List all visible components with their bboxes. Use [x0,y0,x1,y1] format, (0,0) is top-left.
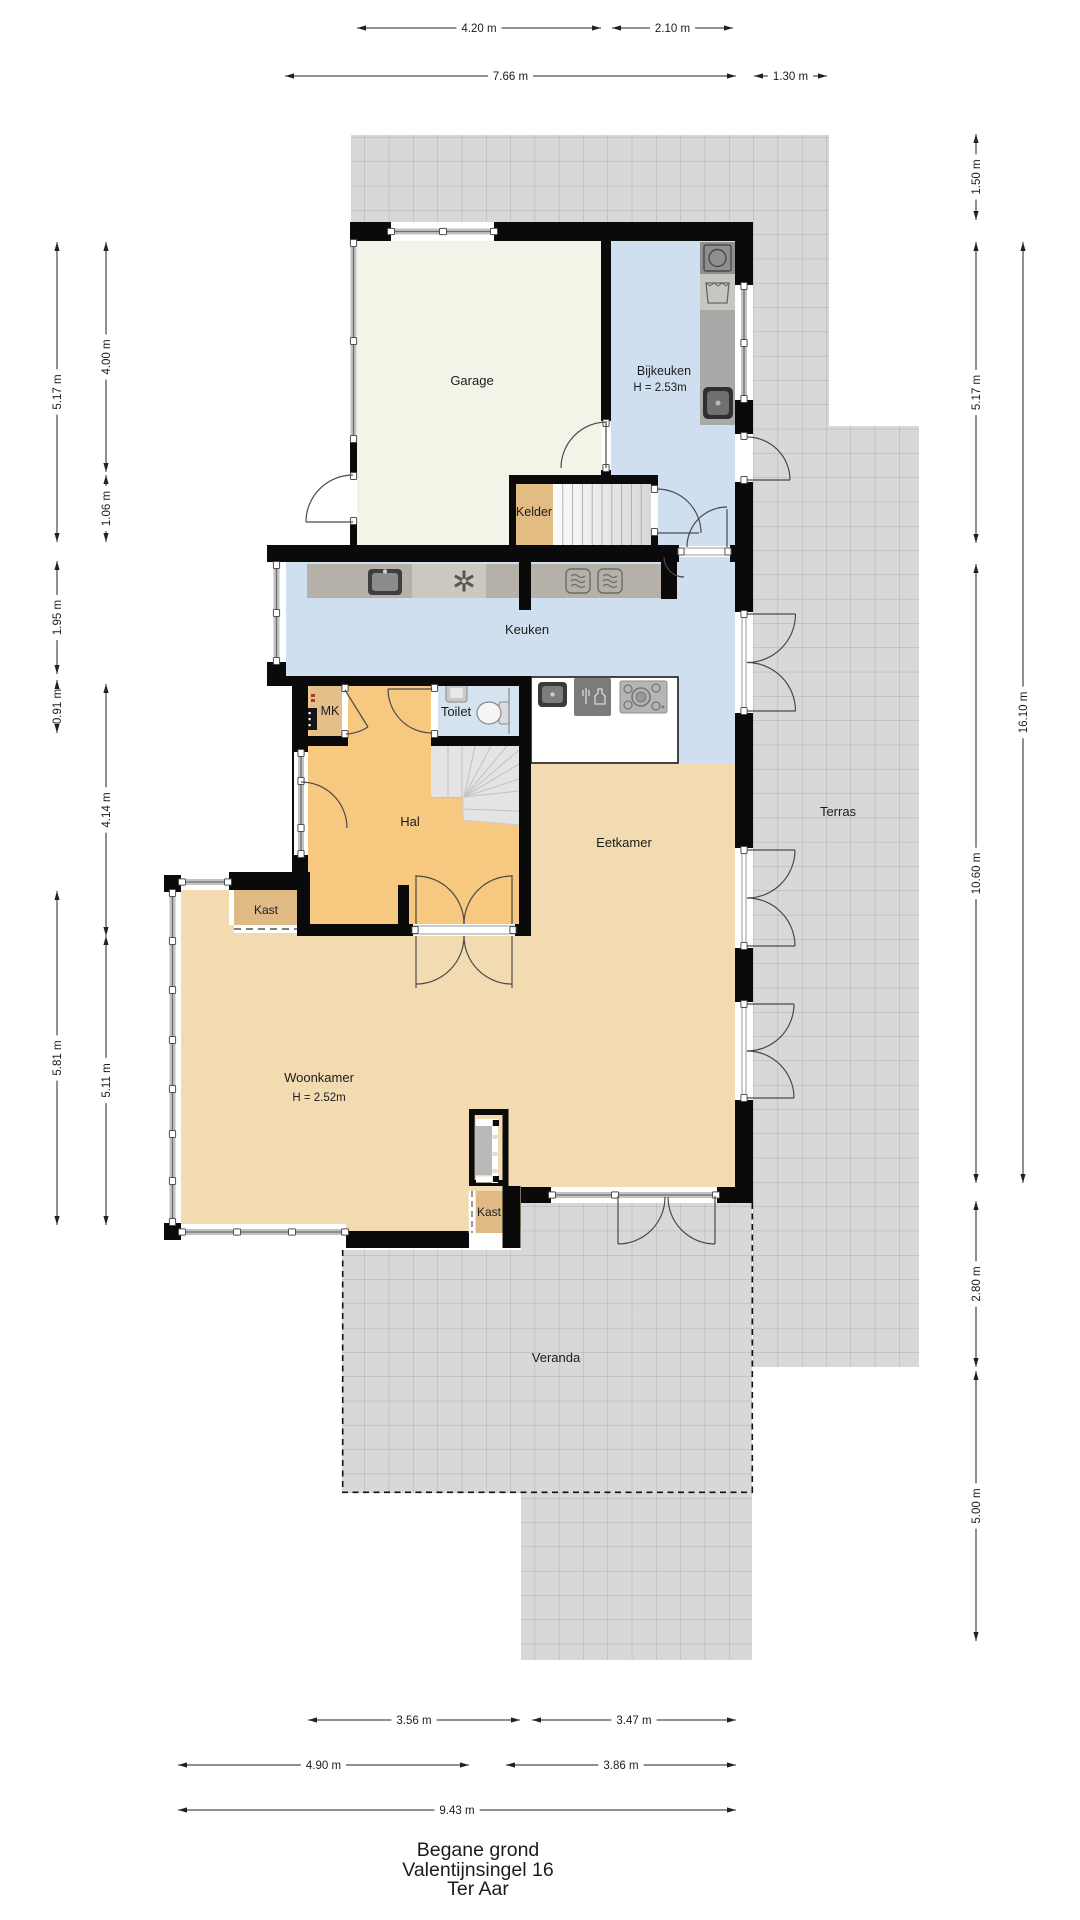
svg-text:4.90 m: 4.90 m [306,1760,341,1772]
svg-text:Bijkeuken: Bijkeuken [637,364,691,378]
svg-text:Begane grond: Begane grond [417,1839,540,1861]
svg-text:Kelder: Kelder [516,505,552,519]
svg-text:3.47 m: 3.47 m [616,1715,651,1727]
svg-text:0.91 m: 0.91 m [52,689,64,724]
svg-text:3.56 m: 3.56 m [396,1715,431,1727]
svg-text:H = 2.53m: H = 2.53m [633,382,686,394]
svg-text:4.14 m: 4.14 m [101,792,113,827]
svg-text:5.11 m: 5.11 m [101,1063,113,1097]
svg-text:1.30 m: 1.30 m [773,71,808,83]
svg-text:10.60 m: 10.60 m [971,853,983,895]
svg-text:MK: MK [321,704,340,718]
svg-text:1.95 m: 1.95 m [52,600,64,635]
svg-text:4.20 m: 4.20 m [461,23,496,35]
svg-text:Woonkamer: Woonkamer [284,1070,355,1085]
svg-text:Veranda: Veranda [532,1350,581,1365]
svg-text:3.86 m: 3.86 m [603,1760,638,1772]
svg-text:Garage: Garage [450,373,493,388]
svg-text:7.66 m: 7.66 m [493,71,528,83]
svg-text:Keuken: Keuken [505,622,549,637]
svg-text:5.81 m: 5.81 m [52,1040,64,1075]
svg-text:Kast: Kast [477,1205,502,1219]
svg-text:Eetkamer: Eetkamer [596,835,652,850]
svg-text:5.00 m: 5.00 m [971,1488,983,1523]
svg-text:H = 2.52m: H = 2.52m [292,1092,345,1104]
svg-text:Ter Aar: Ter Aar [447,1878,509,1900]
svg-text:9.43 m: 9.43 m [439,1805,474,1817]
svg-text:5.17 m: 5.17 m [52,374,64,409]
svg-text:16.10 m: 16.10 m [1018,692,1030,734]
svg-text:1.50 m: 1.50 m [971,159,983,194]
svg-text:Toilet: Toilet [441,704,472,719]
svg-text:Hal: Hal [400,814,420,829]
svg-text:Kast: Kast [254,903,279,917]
svg-text:5.17 m: 5.17 m [971,375,983,410]
svg-text:Terras: Terras [820,804,857,819]
svg-text:1.06 m: 1.06 m [101,491,113,526]
svg-text:2.10 m: 2.10 m [655,23,690,35]
svg-text:4.00 m: 4.00 m [101,339,113,374]
svg-text:2.80 m: 2.80 m [971,1266,983,1301]
